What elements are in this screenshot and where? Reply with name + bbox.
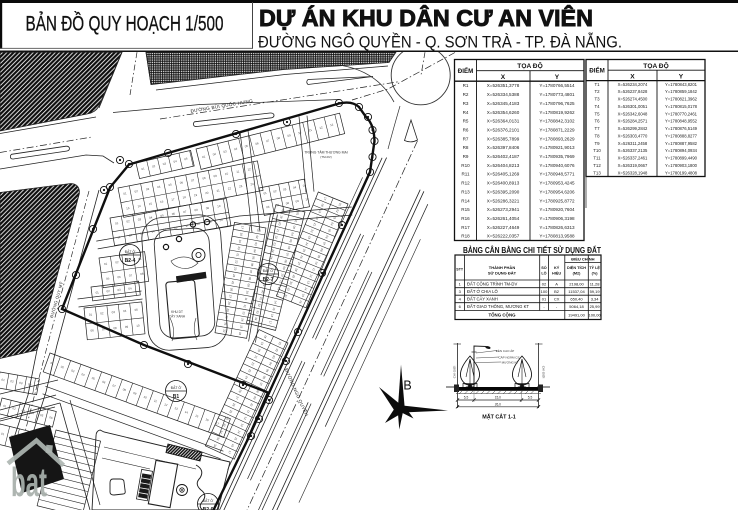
svg-text:X=526234,2074: X=526234,2074 [618, 82, 648, 87]
svg-text:Y=1780848,9552: Y=1780848,9552 [665, 119, 698, 124]
svg-text:12: 12 [309, 274, 314, 279]
svg-text:X=526385,7899: X=526385,7899 [487, 136, 520, 141]
svg-text:Y=1780796,7625: Y=1780796,7625 [539, 101, 575, 106]
svg-text:09: 09 [133, 391, 138, 396]
svg-text:Y=1780770,2461: Y=1780770,2461 [665, 111, 698, 116]
svg-text:18: 18 [239, 232, 244, 236]
svg-text:20: 20 [315, 216, 320, 221]
svg-text:03: 03 [223, 149, 227, 154]
svg-text:T10: T10 [593, 148, 601, 153]
svg-text:03: 03 [146, 187, 150, 192]
svg-text:21: 21 [235, 253, 240, 257]
svg-text:29: 29 [228, 409, 233, 414]
svg-text:T12: T12 [593, 163, 601, 168]
svg-text:02: 02 [60, 365, 65, 370]
svg-text:09: 09 [282, 266, 287, 270]
svg-text:03: 03 [19, 381, 23, 386]
svg-text:21: 21 [276, 228, 281, 232]
svg-text:13: 13 [140, 231, 144, 236]
svg-text:Y=1780906,3198: Y=1780906,3198 [539, 216, 575, 221]
svg-text:17: 17 [268, 320, 273, 324]
svg-text:Y=1780843,8201: Y=1780843,8201 [665, 82, 698, 87]
svg-text:14: 14 [303, 287, 308, 292]
svg-text:Y=1780871,2229: Y=1780871,2229 [539, 128, 575, 133]
svg-text:13: 13 [241, 311, 246, 315]
svg-text:09: 09 [213, 174, 217, 179]
svg-text:X=526364,0131: X=526364,0131 [487, 119, 520, 124]
svg-text:X=526227,4649: X=526227,4649 [487, 225, 520, 230]
svg-text:31: 31 [223, 322, 228, 326]
svg-text:R18: R18 [461, 234, 470, 239]
svg-text:15: 15 [233, 436, 238, 441]
svg-text:A: A [555, 282, 558, 287]
svg-text:R12: R12 [461, 181, 470, 186]
svg-text:24: 24 [244, 375, 249, 380]
svg-text:05: 05 [302, 183, 306, 188]
svg-text:CÁP NGẦM CS: CÁP NGẦM CS [499, 356, 520, 360]
svg-text:03: 03 [117, 288, 121, 292]
svg-text:X=526299,2842: X=526299,2842 [618, 126, 648, 131]
svg-text:07: 07 [191, 178, 195, 183]
svg-text:09: 09 [125, 325, 129, 329]
svg-text:19: 19 [238, 239, 243, 243]
svg-text:T9: T9 [594, 141, 600, 146]
svg-text:MẶT CẮT 1-1: MẶT CẮT 1-1 [482, 413, 516, 421]
svg-text:10: 10 [225, 171, 229, 176]
svg-text:X=526284,2571: X=526284,2571 [618, 119, 648, 124]
svg-text:03: 03 [71, 368, 76, 373]
svg-text:16: 16 [230, 443, 235, 448]
svg-text:26,0: 26,0 [495, 402, 501, 406]
svg-text:T5: T5 [594, 111, 600, 116]
svg-text:T1: T1 [594, 82, 600, 87]
svg-text:09: 09 [205, 206, 209, 211]
svg-text:R4: R4 [463, 110, 469, 115]
svg-text:16: 16 [238, 332, 243, 336]
svg-text:28: 28 [294, 268, 299, 273]
svg-text:20: 20 [219, 218, 223, 223]
svg-text:BẢN ĐỒ QUY HOẠCH 1/500: BẢN ĐỒ QUY HOẠCH 1/500 [26, 10, 224, 35]
svg-text:06: 06 [324, 235, 329, 240]
svg-text:X=526376,2101: X=526376,2101 [487, 128, 520, 133]
svg-text:12: 12 [164, 402, 169, 407]
svg-text:Y=1780876,5149: Y=1780876,5149 [665, 126, 698, 131]
svg-text:12: 12 [243, 304, 248, 308]
svg-text:14: 14 [137, 204, 141, 209]
svg-text:Y=1780826,6313: Y=1780826,6313 [539, 225, 575, 230]
svg-text:05: 05 [134, 308, 138, 312]
svg-text:01: 01 [202, 154, 206, 159]
svg-text:16: 16 [298, 300, 303, 305]
svg-text:02: 02 [212, 152, 216, 157]
svg-text:Y=1780903,1800: Y=1780903,1800 [665, 163, 698, 168]
svg-text:T8: T8 [594, 133, 600, 138]
svg-text:X=526319,0667: X=526319,0667 [618, 163, 648, 168]
svg-text:16: 16 [205, 417, 210, 422]
svg-text:X=526337,2135: X=526337,2135 [618, 148, 648, 153]
svg-text:05: 05 [265, 368, 270, 373]
svg-text:04: 04 [290, 232, 295, 236]
svg-text:22: 22 [234, 260, 239, 264]
svg-text:10: 10 [249, 402, 254, 407]
svg-text:15: 15 [195, 414, 200, 419]
svg-text:05: 05 [160, 213, 164, 218]
svg-text:X=526328,1948: X=526328,1948 [618, 170, 648, 175]
svg-text:09: 09 [287, 133, 291, 138]
svg-text:11: 11 [153, 399, 158, 404]
svg-text:01: 01 [115, 221, 119, 226]
svg-text:31: 31 [259, 296, 264, 300]
svg-text:14: 14 [151, 229, 155, 234]
svg-text:X=526397,8406: X=526397,8406 [487, 145, 520, 150]
svg-text:R13: R13 [461, 189, 470, 194]
svg-text:07: 07 [183, 210, 187, 215]
svg-text:12: 12 [243, 416, 248, 421]
svg-text:R15: R15 [461, 207, 470, 212]
svg-text:ĐƯỜNG BÙI QUỐC HƯNG: ĐƯỜNG BÙI QUỐC HƯNG [190, 97, 253, 113]
svg-text:14: 14 [240, 318, 245, 322]
svg-text:ĐƯỜNG NGÔ QUYỀN - Q. SƠN TRÀ -: ĐƯỜNG NGÔ QUYỀN - Q. SƠN TRÀ - TP. ĐÀ NẴ… [258, 33, 622, 52]
svg-text:11: 11 [308, 128, 312, 133]
svg-text:21: 21 [312, 222, 317, 227]
svg-text:08: 08 [276, 136, 280, 141]
svg-text:X=526395,2090: X=526395,2090 [487, 189, 520, 194]
svg-text:R17: R17 [461, 225, 470, 230]
svg-text:R3: R3 [463, 101, 469, 106]
svg-text:07: 07 [266, 138, 270, 143]
svg-text:TỔNG CỘNG: TỔNG CỘNG [488, 313, 516, 318]
svg-text:CÂY XANH: CÂY XANH [169, 315, 186, 319]
svg-text:ĐẤT GIAO THÔNG, MƯƠNG KT: ĐẤT GIAO THÔNG, MƯƠNG KT [467, 304, 529, 309]
svg-text:06: 06 [90, 328, 94, 332]
svg-text:09: 09 [316, 254, 321, 259]
svg-text:R8: R8 [463, 145, 469, 150]
svg-text:CX: CX [554, 297, 560, 302]
svg-text:Y=1780940,6076: Y=1780940,6076 [539, 163, 575, 168]
svg-text:24: 24 [250, 182, 254, 187]
svg-text:22: 22 [274, 235, 279, 239]
svg-text:10: 10 [305, 197, 309, 202]
svg-text:26: 26 [238, 389, 243, 394]
svg-text:03: 03 [283, 187, 287, 192]
svg-text:DIỆN TÍCH: DIỆN TÍCH [567, 265, 586, 270]
svg-text:ĐÈN CAO ÁP: ĐÈN CAO ÁP [496, 348, 515, 353]
svg-text:Y=1780948,5771: Y=1780948,5771 [539, 172, 575, 177]
svg-text:R7: R7 [463, 136, 469, 141]
svg-text:ĐIỂM: ĐIỂM [589, 68, 604, 75]
svg-text:THÀNH PHẦN: THÀNH PHẦN [489, 265, 516, 270]
svg-text:X=526405,1269: X=526405,1269 [487, 172, 520, 177]
svg-text:26: 26 [299, 255, 304, 260]
svg-text:10: 10 [314, 261, 319, 266]
svg-text:01: 01 [542, 297, 547, 302]
svg-text:X=526222,0357: X=526222,0357 [487, 234, 520, 239]
svg-text:18: 18 [263, 334, 268, 339]
svg-text:04: 04 [149, 215, 153, 220]
svg-text:05: 05 [168, 182, 172, 187]
svg-text:Y=1780920,7604: Y=1780920,7604 [539, 207, 575, 212]
svg-text:X=526337,2461: X=526337,2461 [618, 156, 648, 161]
svg-text:01: 01 [263, 191, 267, 196]
svg-text:04: 04 [173, 159, 177, 164]
svg-text:02: 02 [100, 311, 104, 315]
svg-text:05: 05 [40, 413, 44, 418]
svg-text:TỶ LỆ: TỶ LỆ [589, 265, 600, 270]
svg-text:T13: T13 [593, 170, 601, 175]
svg-text:06: 06 [250, 263, 255, 267]
svg-text:ĐẤT Ở: ĐẤT Ở [171, 385, 182, 390]
svg-text:ĐIỂM: ĐIỂM [458, 68, 473, 75]
svg-text:18: 18 [196, 221, 200, 226]
svg-text:R2: R2 [463, 92, 469, 97]
svg-text:32: 32 [257, 303, 262, 307]
svg-text:X=526286,3221: X=526286,3221 [487, 198, 520, 203]
svg-text:14: 14 [236, 430, 241, 435]
svg-text:01: 01 [1, 432, 5, 437]
svg-text:14: 14 [184, 410, 189, 415]
svg-text:13: 13 [174, 406, 179, 411]
svg-text:13: 13 [239, 423, 244, 428]
svg-text:28: 28 [231, 402, 236, 407]
svg-text:04: 04 [268, 361, 273, 366]
svg-text:T4: T4 [594, 104, 600, 109]
svg-text:STT: STT [456, 268, 464, 272]
svg-text:19491,00: 19491,00 [568, 313, 585, 318]
svg-text:08: 08 [247, 277, 252, 281]
svg-text:01: 01 [104, 262, 108, 266]
svg-text:02: 02 [10, 379, 14, 384]
svg-text:23: 23 [307, 235, 312, 240]
svg-text:B2: B2 [554, 289, 560, 294]
svg-text:R5: R5 [463, 119, 469, 124]
svg-text:Y=1780766,5514: Y=1780766,5514 [539, 83, 575, 88]
svg-text:Y: Y [555, 74, 560, 81]
svg-text:04: 04 [329, 222, 334, 227]
svg-text:06: 06 [117, 275, 121, 279]
svg-text:Y=1780887,9582: Y=1780887,9582 [665, 141, 698, 146]
svg-text:25: 25 [230, 281, 235, 285]
svg-text:05: 05 [327, 228, 332, 233]
svg-text:03: 03 [254, 242, 259, 246]
svg-text:R9: R9 [463, 154, 469, 159]
svg-text:20: 20 [256, 348, 261, 353]
svg-text:04: 04 [252, 249, 257, 253]
svg-text:10: 10 [136, 324, 140, 328]
svg-text:05: 05 [251, 256, 256, 260]
svg-text:B: B [403, 379, 411, 393]
svg-text:24: 24 [232, 274, 237, 278]
svg-text:ĐẤT Ở: ĐẤT Ở [263, 268, 274, 273]
svg-text:R14: R14 [461, 198, 470, 203]
svg-text:33: 33 [255, 310, 260, 314]
svg-text:X=526334,5388: X=526334,5388 [487, 92, 520, 97]
svg-text:TỌA ĐỘ: TỌA ĐỘ [643, 61, 668, 70]
svg-text:02: 02 [274, 348, 279, 353]
svg-text:5064,18: 5064,18 [569, 304, 584, 309]
svg-text:HIỆU: HIỆU [552, 271, 561, 276]
svg-text:ĐẤT CÂY XANH: ĐẤT CÂY XANH [467, 297, 498, 302]
svg-text:Y=1780842,3102: Y=1780842,3102 [539, 119, 575, 124]
svg-text:15: 15 [301, 293, 306, 298]
svg-text:09: 09 [295, 199, 299, 204]
svg-text:04: 04 [293, 185, 297, 190]
svg-text:17: 17 [227, 450, 232, 455]
svg-text:01: 01 [277, 341, 282, 346]
svg-text:11: 11 [236, 169, 240, 174]
svg-text:ĐIỀU CHỈNH: ĐIỀU CHỈNH [571, 257, 594, 262]
svg-text:19: 19 [194, 193, 198, 198]
svg-text:T3: T3 [594, 97, 600, 102]
svg-text:R1: R1 [463, 83, 469, 88]
svg-text:(%): (%) [592, 272, 599, 276]
svg-text:22: 22 [250, 362, 255, 367]
svg-text:Y=1780954,6206: Y=1780954,6206 [539, 189, 575, 194]
svg-text:B2-7: B2-7 [263, 277, 274, 283]
svg-text:X=526301,0051: X=526301,0051 [618, 104, 648, 109]
svg-text:T6: T6 [594, 119, 600, 124]
svg-text:30: 30 [288, 281, 293, 286]
svg-text:14: 14 [273, 300, 278, 304]
svg-text:X=526273,2941: X=526273,2941 [487, 207, 520, 212]
svg-text:X=526354,6260: X=526354,6260 [487, 110, 520, 115]
svg-text:16: 16 [270, 314, 275, 318]
svg-text:01: 01 [1, 378, 5, 383]
svg-text:15: 15 [271, 307, 276, 311]
svg-text:X=526402,4187: X=526402,4187 [487, 154, 520, 159]
svg-text:01: 01 [141, 166, 145, 171]
svg-text:08: 08 [283, 259, 288, 263]
svg-text:05: 05 [288, 239, 293, 243]
svg-text:SỐ: SỐ [541, 265, 547, 270]
svg-text:02: 02 [273, 189, 277, 194]
svg-text:X=526400,8913: X=526400,8913 [487, 181, 520, 186]
svg-text:07: 07 [249, 270, 254, 274]
svg-text:25,99: 25,99 [590, 304, 601, 309]
svg-text:15: 15 [239, 325, 244, 329]
svg-text:08: 08 [194, 208, 198, 213]
svg-text:R11: R11 [461, 172, 470, 177]
svg-text:04: 04 [234, 146, 238, 151]
svg-text:(M2): (M2) [573, 272, 582, 276]
svg-text:08: 08 [122, 387, 127, 392]
svg-text:R6: R6 [463, 128, 469, 133]
svg-text:11: 11 [244, 297, 249, 301]
svg-text:bat: bat [11, 459, 47, 505]
svg-text:ĐẤT Ở: ĐẤT Ở [125, 249, 136, 254]
svg-text:21: 21 [216, 188, 220, 193]
svg-text:17: 17 [171, 197, 175, 202]
svg-text:01: 01 [95, 290, 99, 294]
svg-text:Y=1780773,4801: Y=1780773,4801 [539, 92, 575, 97]
svg-text:Y=1780899,4490: Y=1780899,4490 [665, 156, 698, 161]
svg-text:(TM-DV): (TM-DV) [320, 155, 332, 159]
svg-text:B2-4: B2-4 [125, 258, 136, 264]
svg-text:03: 03 [292, 225, 297, 229]
svg-text:26: 26 [229, 288, 234, 292]
svg-text:08: 08 [202, 176, 206, 181]
svg-text:08: 08 [140, 272, 144, 276]
svg-text:02: 02 [106, 289, 110, 293]
svg-text:11,28: 11,28 [590, 282, 600, 287]
svg-text:17: 17 [240, 225, 245, 229]
svg-text:12: 12 [319, 125, 323, 130]
svg-text:06: 06 [266, 205, 270, 210]
svg-text:X=526351,3778: X=526351,3778 [487, 83, 520, 88]
svg-text:Y=1780953,4245: Y=1780953,4245 [539, 181, 575, 186]
svg-text:10: 10 [143, 395, 148, 400]
svg-text:01: 01 [256, 228, 261, 232]
svg-text:09: 09 [252, 396, 257, 401]
svg-text:20: 20 [277, 222, 282, 226]
svg-text:5,5: 5,5 [528, 396, 533, 400]
svg-text:16: 16 [160, 199, 164, 204]
svg-text:21: 21 [253, 355, 258, 360]
svg-text:11: 11 [246, 409, 251, 414]
svg-text:05: 05 [106, 276, 110, 280]
svg-text:01: 01 [50, 361, 55, 366]
svg-text:03: 03 [271, 355, 276, 360]
svg-text:19: 19 [260, 341, 265, 346]
svg-text:LÔ: LÔ [541, 271, 546, 276]
svg-text:X=526404,8213: X=526404,8213 [487, 163, 520, 168]
svg-text:ĐẤT Ở CHIA LÔ: ĐẤT Ở CHIA LÔ [467, 289, 498, 294]
svg-text:17: 17 [323, 196, 328, 201]
svg-text:X=526303,4770: X=526303,4770 [618, 133, 648, 138]
svg-text:01: 01 [123, 191, 127, 196]
svg-text:Y=1780859,1842: Y=1780859,1842 [665, 89, 698, 94]
svg-text:27: 27 [234, 396, 239, 401]
svg-text:34: 34 [254, 317, 259, 321]
svg-text:23: 23 [247, 368, 252, 373]
svg-text:20: 20 [237, 246, 242, 250]
svg-text:31: 31 [286, 287, 291, 292]
svg-text:05: 05 [184, 157, 188, 162]
svg-text:R10: R10 [461, 163, 470, 168]
svg-text:X=526237,8428: X=526237,8428 [618, 89, 648, 94]
svg-text:X=526311,2458: X=526311,2458 [618, 141, 648, 146]
svg-text:X=526342,6048: X=526342,6048 [618, 111, 648, 116]
svg-text:25: 25 [302, 248, 307, 253]
svg-text:13: 13 [330, 122, 334, 127]
svg-text:23: 23 [233, 267, 238, 271]
svg-text:SỬ DỤNG ĐẤT: SỬ DỤNG ĐẤT [488, 271, 517, 276]
svg-text:X: X [630, 73, 635, 80]
svg-text:12: 12 [247, 167, 251, 172]
svg-text:10: 10 [245, 290, 250, 294]
svg-text:Y=1780893,2629: Y=1780893,2629 [539, 136, 575, 141]
svg-text:B1: B1 [173, 394, 180, 400]
svg-text:KÝ: KÝ [554, 265, 560, 270]
svg-text:2198,00: 2198,00 [569, 282, 584, 287]
svg-text:5,5: 5,5 [464, 396, 469, 400]
svg-text:ĐẤT CÔNG TRÌNH TM-DV: ĐẤT CÔNG TRÌNH TM-DV [467, 282, 517, 287]
svg-text:11: 11 [311, 267, 316, 272]
svg-text:08: 08 [113, 326, 117, 330]
svg-text:04: 04 [81, 372, 86, 377]
svg-text:16: 16 [174, 225, 178, 230]
svg-text:18: 18 [182, 195, 186, 200]
svg-text:100,00: 100,00 [588, 313, 601, 318]
svg-text:06: 06 [102, 380, 107, 385]
svg-text:Y=1780894,0934: Y=1780894,0934 [665, 148, 698, 153]
svg-text:Y=1780199,4808: Y=1780199,4808 [665, 170, 698, 175]
svg-text:02: 02 [293, 219, 298, 223]
svg-text:TỌA ĐỘ: TỌA ĐỘ [517, 61, 542, 70]
svg-text:28: 28 [227, 301, 232, 305]
svg-text:02: 02 [335, 209, 340, 214]
svg-text:22: 22 [227, 186, 231, 191]
svg-text:33: 33 [216, 436, 221, 441]
